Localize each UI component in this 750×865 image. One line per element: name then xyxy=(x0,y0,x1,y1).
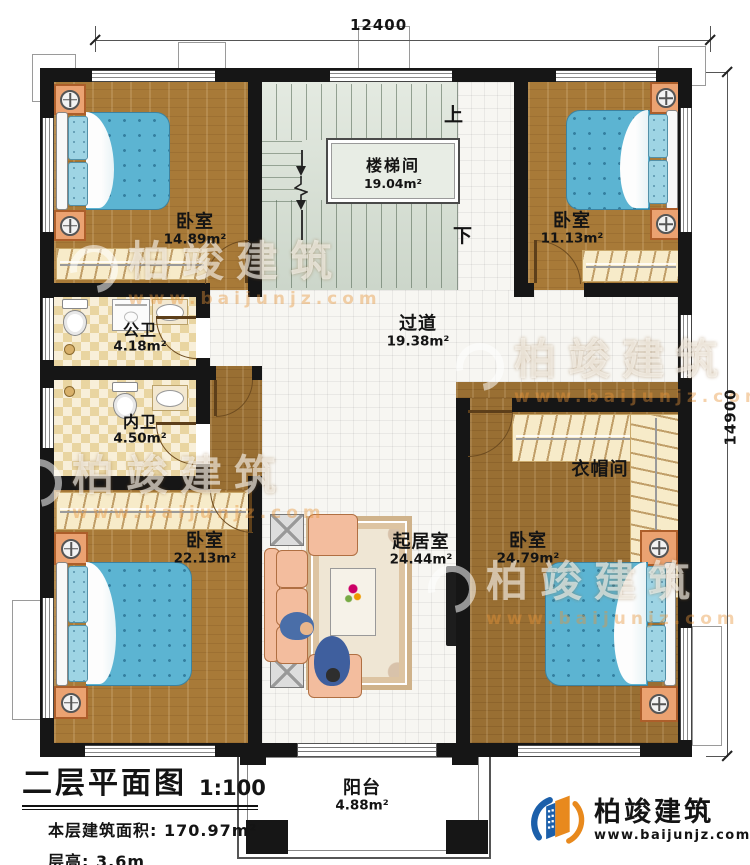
sofa-seat xyxy=(276,550,308,588)
wall xyxy=(196,358,210,424)
wall xyxy=(514,82,528,297)
pillow xyxy=(68,162,88,206)
room-label-bedroom-nw: 卧室 14.89m² xyxy=(164,212,227,247)
floor-height-label: 层高: xyxy=(48,852,89,865)
lamp-icon xyxy=(61,539,81,559)
stairwell-label-box: 楼梯间 19.04m² xyxy=(326,138,460,204)
room-label-bath-public: 公卫 4.18m² xyxy=(113,321,166,354)
room-area: 19.38m² xyxy=(387,335,450,350)
door-leaf xyxy=(245,240,248,283)
room-name: 内卫 xyxy=(113,413,166,431)
brand-logo-icon xyxy=(528,792,586,850)
stair-arrow-down-icon xyxy=(296,200,306,210)
floor-corridor-right xyxy=(456,290,678,382)
room-name: 楼梯间 xyxy=(366,152,420,176)
window xyxy=(42,598,54,718)
pillow xyxy=(68,116,88,160)
pillow xyxy=(646,566,666,623)
bay-window-outline xyxy=(12,600,42,720)
room-label-balcony: 阳台 4.88m² xyxy=(335,778,388,813)
lamp-icon xyxy=(60,216,80,236)
floor-drain-icon xyxy=(64,344,75,355)
room-area: 19.04m² xyxy=(364,176,422,191)
stair-up-label: 上 xyxy=(444,100,463,127)
plan-scale: 1:100 xyxy=(199,776,266,802)
nightstand xyxy=(54,84,86,115)
wall xyxy=(196,283,210,318)
window xyxy=(680,628,692,740)
lamp-icon xyxy=(649,694,669,714)
stair-down-label: 下 xyxy=(453,221,472,248)
sink xyxy=(152,385,188,411)
sink-basin xyxy=(156,390,184,407)
nightstand xyxy=(54,686,88,719)
room-area: 24.79m² xyxy=(497,552,560,567)
nightstand xyxy=(640,530,678,566)
window xyxy=(518,745,640,757)
room-area: 22.13m² xyxy=(174,552,237,567)
room-name: 卧室 xyxy=(541,211,604,231)
room-name: 衣帽间 xyxy=(572,460,629,480)
nightstand xyxy=(640,686,678,722)
title-underline xyxy=(22,805,258,807)
door-leaf xyxy=(214,380,217,416)
stair-treads-upper xyxy=(276,84,456,140)
bed-headboard xyxy=(56,112,68,210)
door-leaf xyxy=(534,240,537,283)
bed-headboard xyxy=(56,562,68,686)
dimension-top-value: 12400 xyxy=(350,16,407,34)
bay-window-outline xyxy=(692,626,722,746)
lamp-icon xyxy=(656,88,676,108)
plan-title: 二层平面图 xyxy=(22,758,187,802)
title-block: 二层平面图 1:100 本层建筑面积: 170.97m² 层高: 3.6m xyxy=(22,758,266,865)
window xyxy=(85,745,215,757)
wall xyxy=(252,366,262,380)
lamp-icon xyxy=(60,90,80,110)
floor-corridor-wood-strip xyxy=(456,382,678,398)
window xyxy=(556,70,656,82)
room-area: 4.88m² xyxy=(335,799,388,814)
side-table xyxy=(270,514,304,546)
wall xyxy=(512,398,692,412)
coffee-table xyxy=(330,568,376,636)
wall xyxy=(248,283,262,297)
pillow xyxy=(648,160,668,204)
window xyxy=(330,70,452,82)
window xyxy=(42,388,54,448)
room-area: 14.89m² xyxy=(164,233,227,248)
room-label-living: 起居室 24.44m² xyxy=(390,532,453,567)
room-name: 过道 xyxy=(387,314,450,334)
wall xyxy=(40,476,210,490)
room-label-corridor: 过道 19.38m² xyxy=(387,314,450,349)
floor-height-value: 3.6m xyxy=(96,852,145,865)
room-area: 11.13m² xyxy=(541,232,604,247)
wall xyxy=(40,366,196,380)
title-underline xyxy=(22,809,258,810)
balcony-sliding-door xyxy=(297,743,437,757)
stair-arrow-down-icon xyxy=(296,166,306,176)
pillow xyxy=(648,114,668,158)
closet-rail xyxy=(512,414,634,462)
wardrobe xyxy=(582,250,680,282)
floor-area-label: 本层建筑面积: xyxy=(48,821,157,840)
armchair xyxy=(308,514,358,556)
floor-hall-ne xyxy=(458,82,514,290)
wall xyxy=(248,82,262,283)
dimension-right-value: 14900 xyxy=(722,388,740,445)
room-label-bedroom-ne: 卧室 11.13m² xyxy=(541,211,604,246)
pillow xyxy=(68,566,88,623)
window xyxy=(92,70,215,82)
room-label-bedroom-se: 卧室 24.79m² xyxy=(497,531,560,566)
lamp-icon xyxy=(61,693,81,713)
room-label-bath-private: 内卫 4.50m² xyxy=(113,413,166,446)
floor-area-value: 170.97m² xyxy=(164,821,257,840)
window xyxy=(680,108,692,232)
wall xyxy=(54,283,205,297)
person-figure xyxy=(300,622,313,635)
lamp-icon xyxy=(649,538,669,558)
nightstand xyxy=(54,532,88,565)
room-name: 阳台 xyxy=(335,778,388,798)
brand-name: 柏竣建筑 xyxy=(594,799,750,827)
stair-flight-line xyxy=(301,210,303,240)
door-leaf xyxy=(249,490,252,532)
brand-logo: 柏竣建筑 www.baijunjz.com xyxy=(528,792,750,850)
room-name: 公卫 xyxy=(113,321,166,339)
nightstand xyxy=(54,210,86,241)
floor-drain-icon xyxy=(64,386,75,397)
window xyxy=(680,315,692,378)
room-area: 4.18m² xyxy=(113,339,166,354)
room-area: 24.44m² xyxy=(390,553,453,568)
person-figure xyxy=(326,668,340,682)
wall xyxy=(584,283,692,297)
pillow xyxy=(68,625,88,682)
floor-plan-canvas: 楼梯间 19.04m² 上 下 xyxy=(0,0,750,865)
room-label-bedroom-sw: 卧室 22.13m² xyxy=(174,531,237,566)
door-leaf xyxy=(156,316,196,319)
dimension-line-top xyxy=(95,40,710,41)
wall xyxy=(210,366,216,380)
pillow xyxy=(646,625,666,682)
wardrobe xyxy=(56,248,208,280)
room-name: 卧室 xyxy=(164,212,227,232)
window xyxy=(42,298,54,360)
door-leaf xyxy=(468,410,512,413)
window xyxy=(42,118,54,232)
room-name: 卧室 xyxy=(174,531,237,551)
wall xyxy=(514,283,534,297)
balcony-post xyxy=(446,820,488,854)
stair-treads-lower xyxy=(276,200,456,288)
balcony-post xyxy=(452,745,478,765)
room-area: 4.50m² xyxy=(113,431,166,446)
floor-corridor-left xyxy=(210,290,262,366)
room-name: 卧室 xyxy=(497,531,560,551)
lamp-icon xyxy=(656,214,676,234)
room-name: 起居室 xyxy=(390,532,453,552)
room-label-cloakroom: 衣帽间 xyxy=(572,460,629,480)
stair-break-icon xyxy=(294,176,308,202)
brand-url: www.baijunjz.com xyxy=(594,828,750,843)
toilet xyxy=(62,299,88,336)
